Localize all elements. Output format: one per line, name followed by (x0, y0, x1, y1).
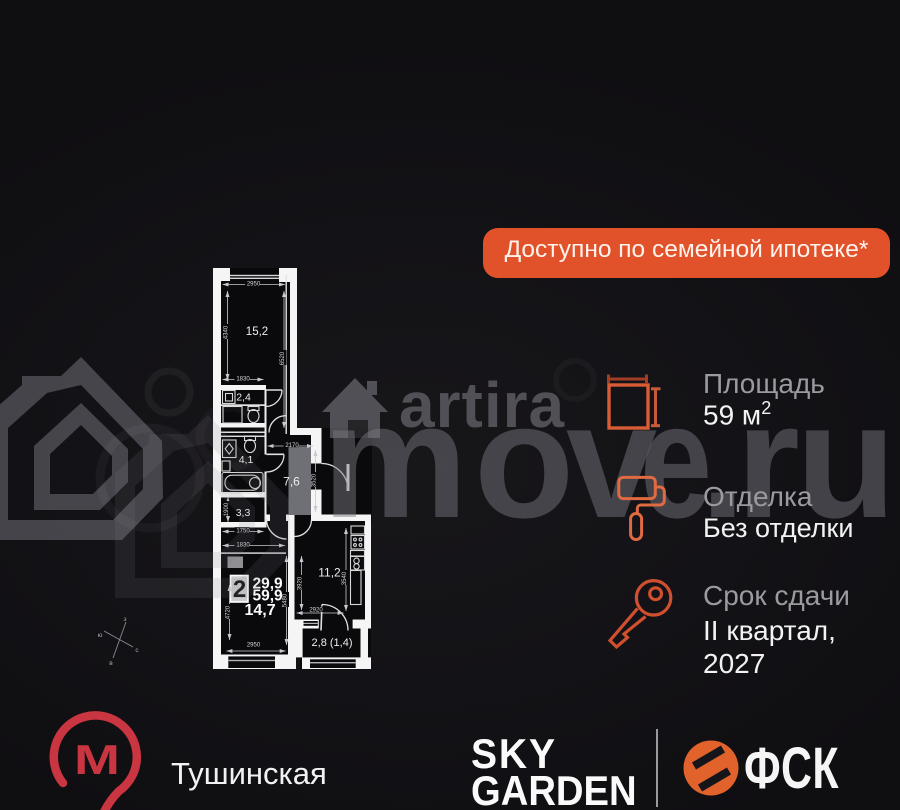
svg-text:М: М (74, 736, 120, 783)
